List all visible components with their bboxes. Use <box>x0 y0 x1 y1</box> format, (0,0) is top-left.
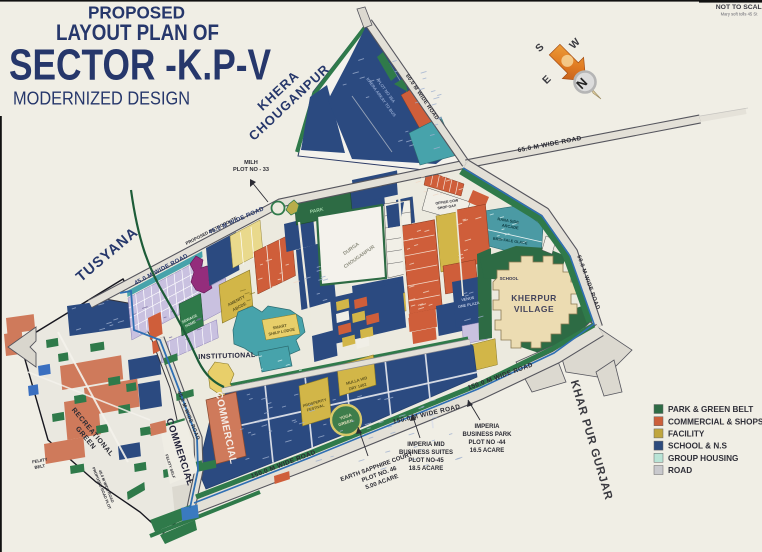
svg-text:PLOT NO-45: PLOT NO-45 <box>408 458 444 464</box>
svg-text:ROAD: ROAD <box>668 466 692 475</box>
svg-text:16.5 ACARE: 16.5 ACARE <box>470 448 504 454</box>
svg-text:COMMERCIAL & SHOPS: COMMERCIAL & SHOPS <box>668 417 762 426</box>
svg-text:KHERPUR: KHERPUR <box>511 293 557 303</box>
svg-text:IMPERIA MID: IMPERIA MID <box>407 442 445 448</box>
svg-text:SECTOR -K.P-V: SECTOR -K.P-V <box>9 41 272 90</box>
svg-text:SCHOOL & N.S: SCHOOL & N.S <box>668 442 728 451</box>
svg-text:Mary soft tolls 45 St: Mary soft tolls 45 St <box>721 12 759 17</box>
svg-text:PARK & GREEN BELT: PARK & GREEN BELT <box>668 405 753 414</box>
svg-text:SCHOOL: SCHOOL <box>500 276 519 281</box>
svg-text:18.5 ACARE: 18.5 ACARE <box>409 466 443 472</box>
svg-text:PLOT NO - 33: PLOT NO - 33 <box>233 167 269 173</box>
svg-text:GROUP HOUSING: GROUP HOUSING <box>668 454 738 463</box>
svg-text:PLOT NO -44: PLOT NO -44 <box>468 440 506 446</box>
svg-text:IMPERIA: IMPERIA <box>474 424 500 430</box>
svg-text:MODERNIZED DESIGN: MODERNIZED DESIGN <box>13 88 190 109</box>
svg-text:BUSINESS PARK: BUSINESS PARK <box>463 432 513 438</box>
svg-text:BUSINESS SUITES: BUSINESS SUITES <box>399 450 453 456</box>
svg-text:MILH: MILH <box>244 160 258 166</box>
svg-text:NOT TO SCALE: NOT TO SCALE <box>716 4 762 11</box>
svg-text:FACILITY: FACILITY <box>668 430 705 439</box>
svg-text:VILLAGE: VILLAGE <box>514 304 554 314</box>
